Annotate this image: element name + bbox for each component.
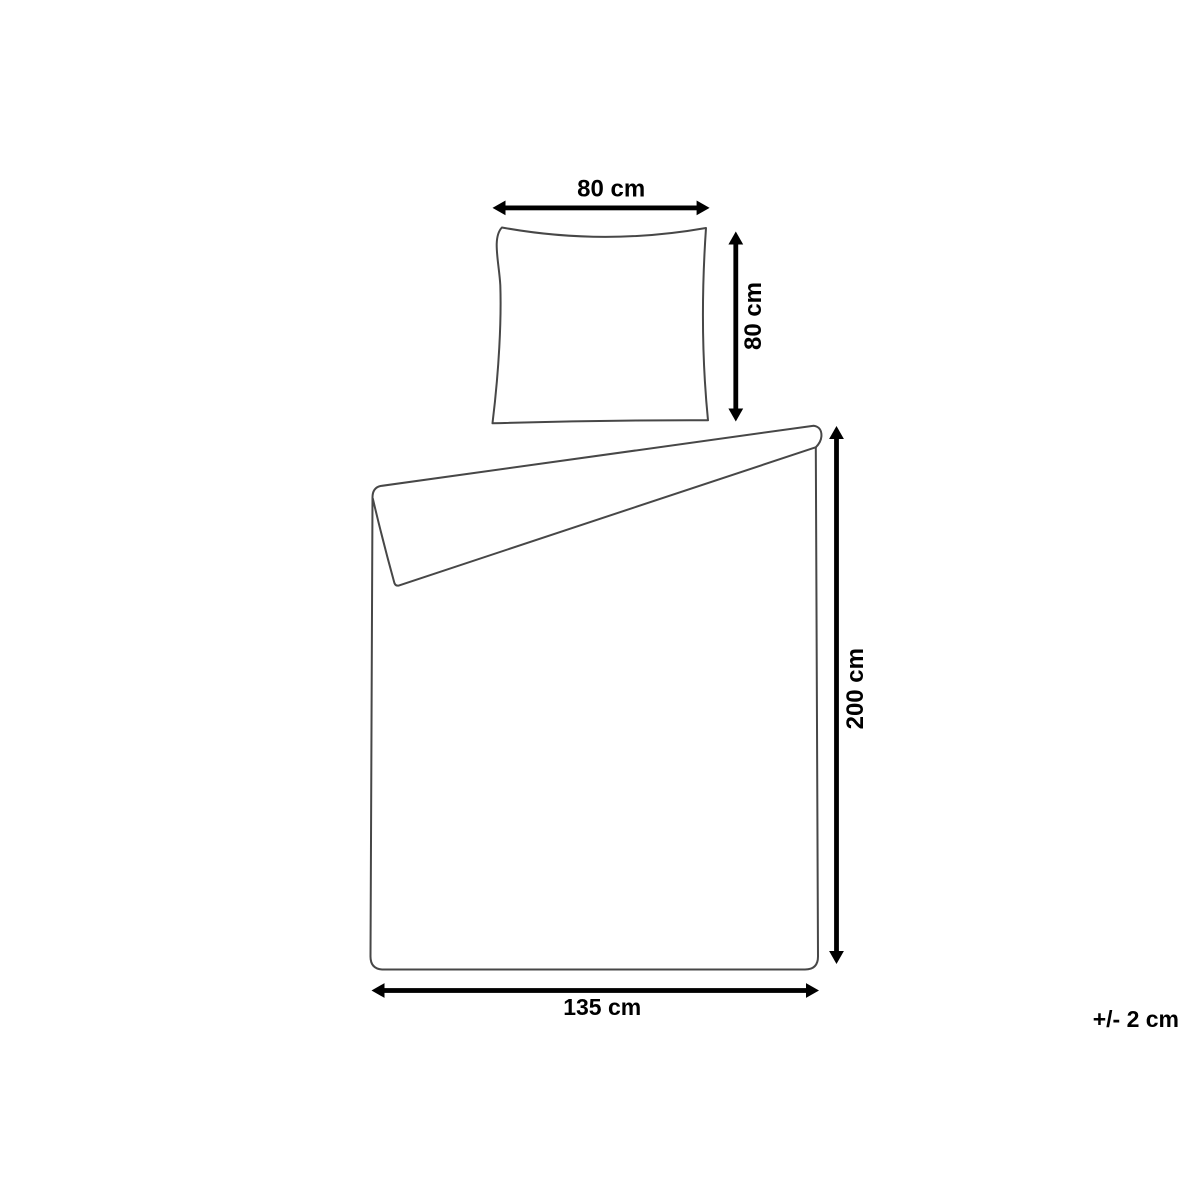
svg-text:80 cm: 80 cm bbox=[577, 176, 645, 203]
svg-text:+/- 2 cm: +/- 2 cm bbox=[1093, 1006, 1179, 1032]
svg-text:200 cm: 200 cm bbox=[842, 648, 869, 729]
svg-text:80 cm: 80 cm bbox=[740, 282, 767, 350]
svg-text:135 cm: 135 cm bbox=[563, 994, 641, 1020]
